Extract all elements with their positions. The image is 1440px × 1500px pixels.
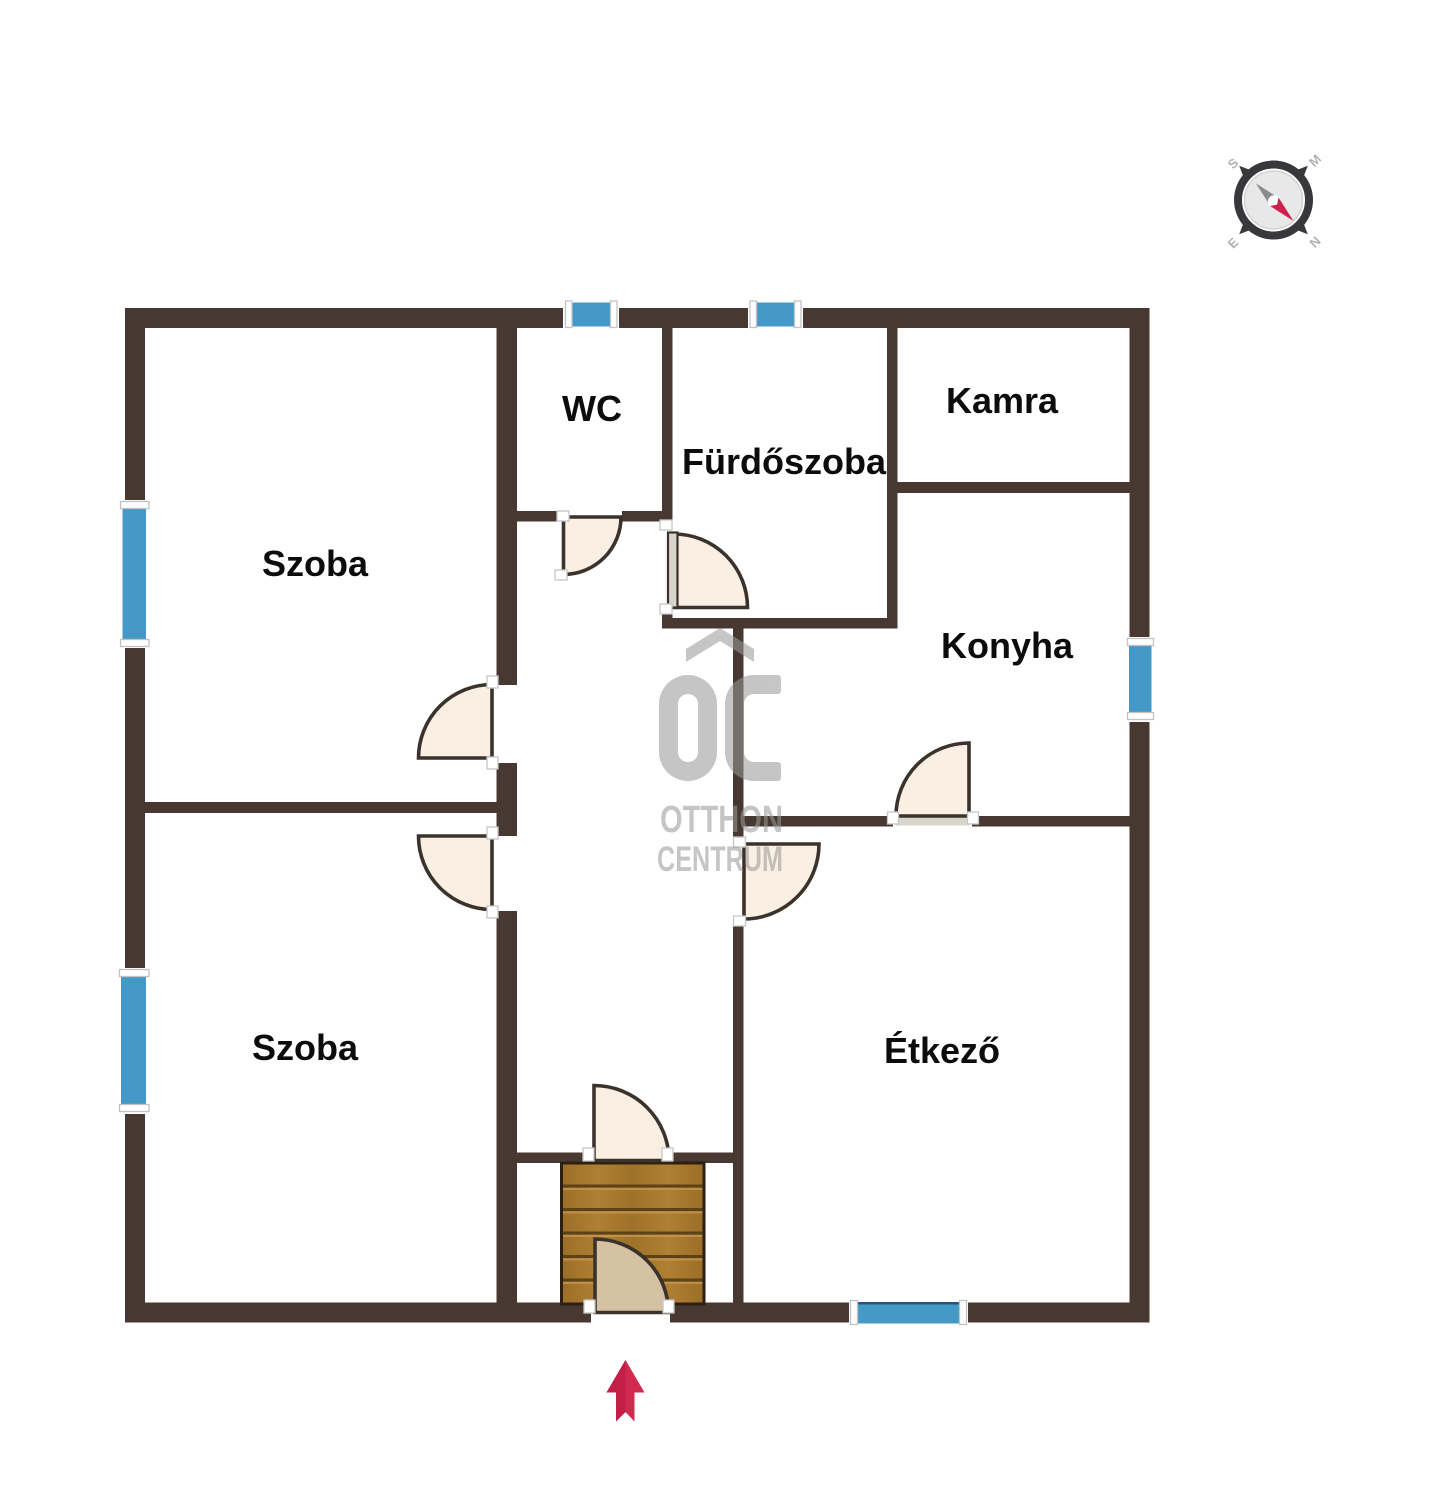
- svg-text:Étkező: Étkező: [884, 1030, 1000, 1071]
- svg-text:CENTRUM: CENTRUM: [657, 840, 783, 879]
- svg-text:E: E: [1225, 234, 1242, 251]
- svg-text:Kamra: Kamra: [946, 380, 1059, 421]
- svg-text:N: N: [1306, 233, 1323, 250]
- svg-text:Szoba: Szoba: [262, 543, 369, 584]
- svg-text:OTTHON: OTTHON: [660, 799, 783, 841]
- svg-text:WC: WC: [562, 388, 622, 429]
- svg-text:Szoba: Szoba: [252, 1027, 359, 1068]
- svg-text:Konyha: Konyha: [941, 625, 1074, 666]
- svg-text:M: M: [1306, 151, 1324, 169]
- svg-text:S: S: [1225, 155, 1242, 172]
- svg-text:Fürdőszoba: Fürdőszoba: [682, 441, 887, 482]
